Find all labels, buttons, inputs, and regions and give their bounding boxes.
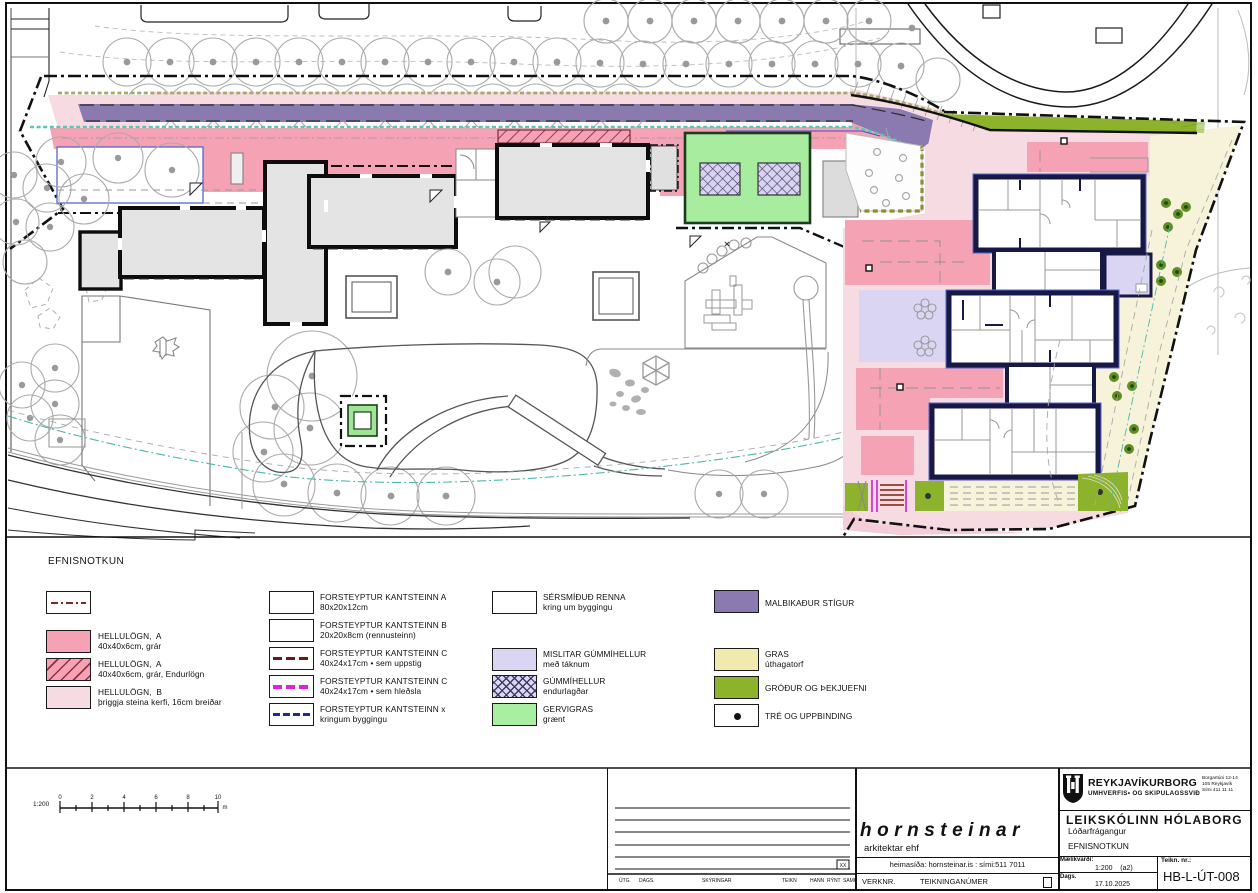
svg-text:RÝNT: RÝNT — [827, 877, 841, 884]
svg-text:SAMÞ: SAMÞ — [843, 878, 855, 884]
svg-text:4: 4 — [122, 795, 126, 801]
svg-text:8: 8 — [186, 795, 190, 801]
svg-text:TEIKN: TEIKN — [782, 878, 797, 884]
svg-text:2: 2 — [90, 795, 94, 801]
svg-text:6: 6 — [154, 795, 158, 801]
svg-text:DAGS.: DAGS. — [639, 878, 655, 884]
svg-text:m: m — [223, 805, 228, 811]
svg-text:HANN: HANN — [810, 878, 825, 884]
svg-text:SKÝRINGAR: SKÝRINGAR — [702, 877, 732, 884]
svg-text:XX: XX — [840, 863, 847, 869]
svg-text:0: 0 — [58, 795, 62, 801]
svg-text:10: 10 — [215, 795, 222, 801]
svg-text:ÚTG.: ÚTG. — [619, 877, 631, 884]
